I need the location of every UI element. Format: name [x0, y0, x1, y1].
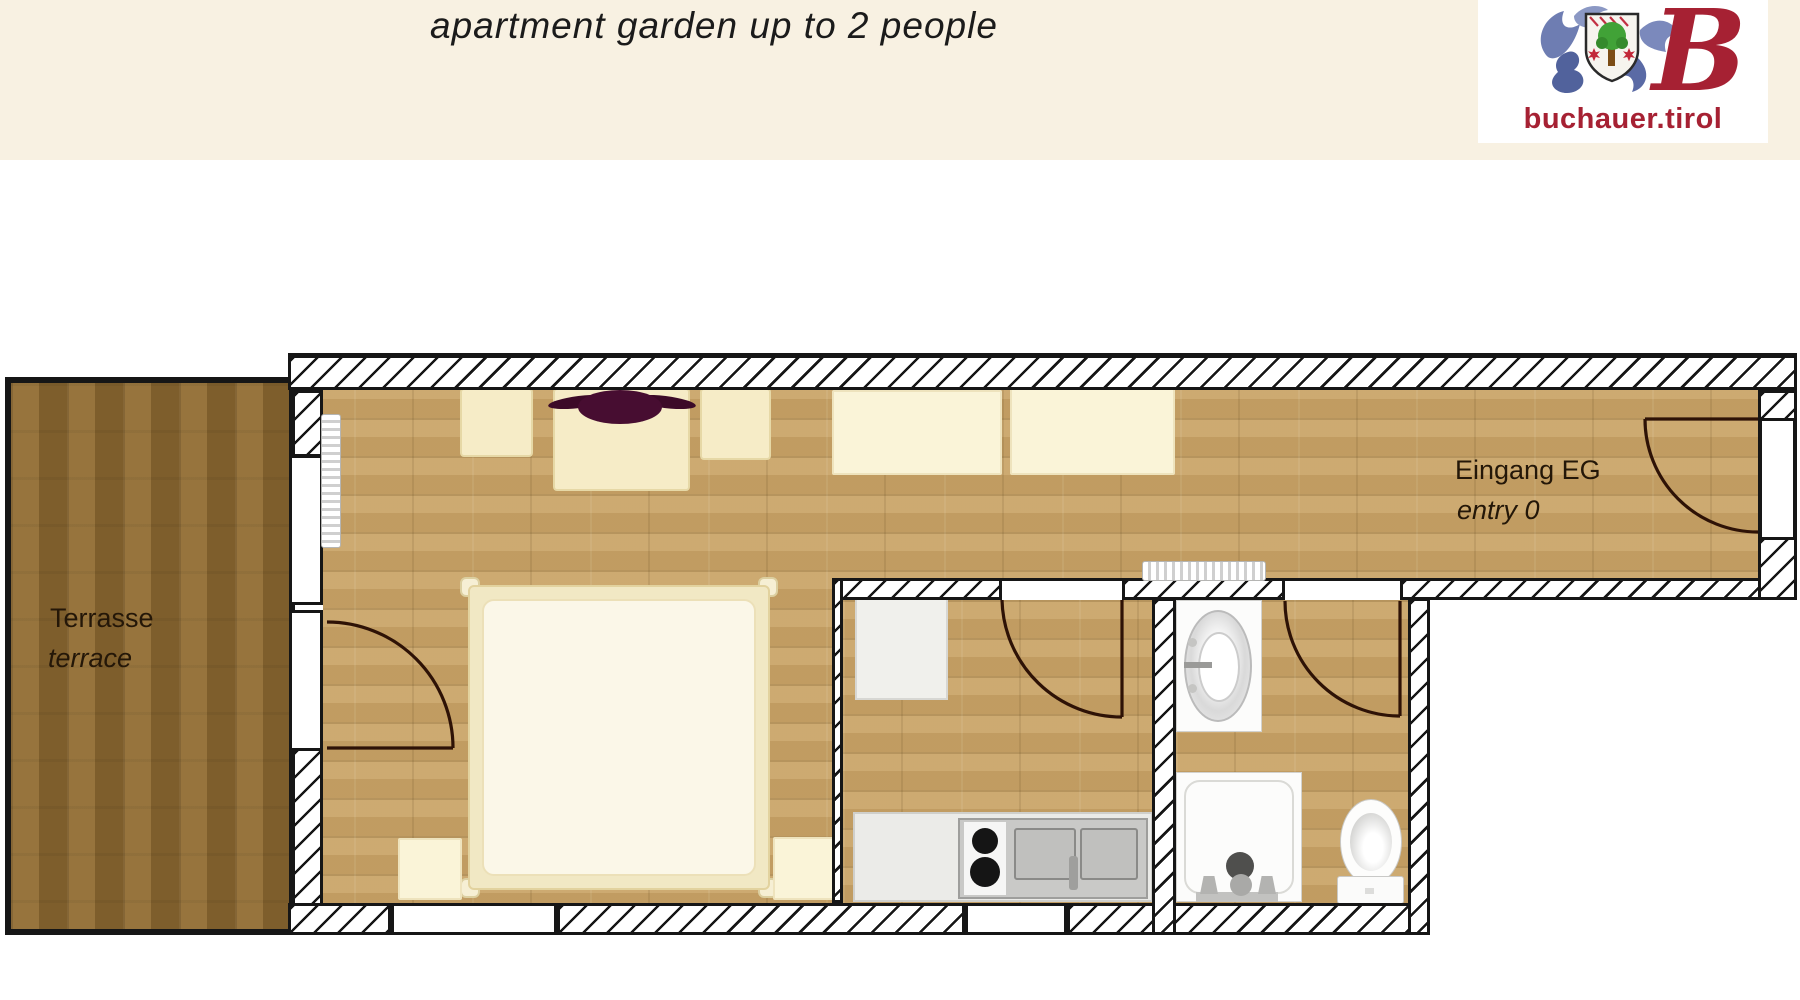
banner-title: apartment garden up to 2 people — [430, 2, 1150, 50]
tap-knob-icon — [1188, 638, 1197, 647]
corridor-wall-left — [832, 578, 1002, 600]
toilet-bowl-inner — [1350, 813, 1392, 871]
toilet-flush-icon — [1365, 888, 1374, 894]
left-wall-upper — [292, 390, 323, 457]
nightstand-left — [398, 838, 462, 900]
bottom-wall-mid — [557, 903, 965, 935]
bath-right-wall — [1408, 598, 1430, 935]
sink-basin — [1080, 828, 1138, 880]
top-wall — [288, 353, 1797, 390]
shower-knob-icon — [1230, 874, 1252, 896]
fridge-cabinet — [855, 598, 948, 700]
table-plant-icon — [578, 390, 662, 424]
chair-1 — [460, 388, 533, 457]
nightstand-right — [773, 837, 835, 900]
sideboard-2 — [1010, 388, 1175, 475]
corridor-wall-mid — [1122, 578, 1285, 600]
logo-crest-icon: B — [1528, 2, 1760, 102]
kitchen-door-opening — [1002, 578, 1122, 600]
chair-2 — [700, 388, 771, 460]
bottom-wall-right — [1067, 903, 1430, 935]
burner-icon — [970, 857, 1000, 887]
sideboard-1 — [832, 390, 1002, 475]
basin-tap-icon — [1184, 662, 1212, 668]
radiator — [1142, 561, 1266, 581]
kitchen-window — [965, 903, 1067, 935]
floor-plan-page: apartment garden up to 2 people B buchau… — [0, 0, 1800, 1000]
bath-door-opening — [1285, 578, 1400, 600]
right-wall-lower — [1758, 537, 1797, 600]
right-wall-upper — [1758, 390, 1797, 421]
logo-monogram: B — [1649, 2, 1747, 102]
logo-site-label: buchauer.tirol — [1478, 103, 1768, 136]
left-window — [292, 455, 323, 605]
sink-tap-icon — [1069, 856, 1078, 890]
burner-icon — [972, 828, 998, 854]
radiator — [321, 414, 341, 548]
terrace-door-opening — [292, 613, 323, 748]
kitchen-bath-wall — [1152, 598, 1176, 935]
terrace-label-de: Terrasse — [50, 598, 154, 638]
tap-knob-icon — [1188, 684, 1197, 693]
entry-label-de: Eingang EG — [1455, 450, 1601, 490]
bottom-wall-left — [288, 903, 391, 935]
bed-mattress — [482, 599, 756, 876]
bedroom-window — [391, 903, 557, 935]
entry-door-opening — [1758, 421, 1797, 537]
bedroom-kitchen-wall — [832, 578, 843, 903]
corridor-wall-right — [1400, 578, 1797, 600]
terrace-label-en: terrace — [48, 638, 132, 678]
sink-basin — [1014, 828, 1076, 880]
entry-label-en: entry 0 — [1457, 490, 1540, 530]
